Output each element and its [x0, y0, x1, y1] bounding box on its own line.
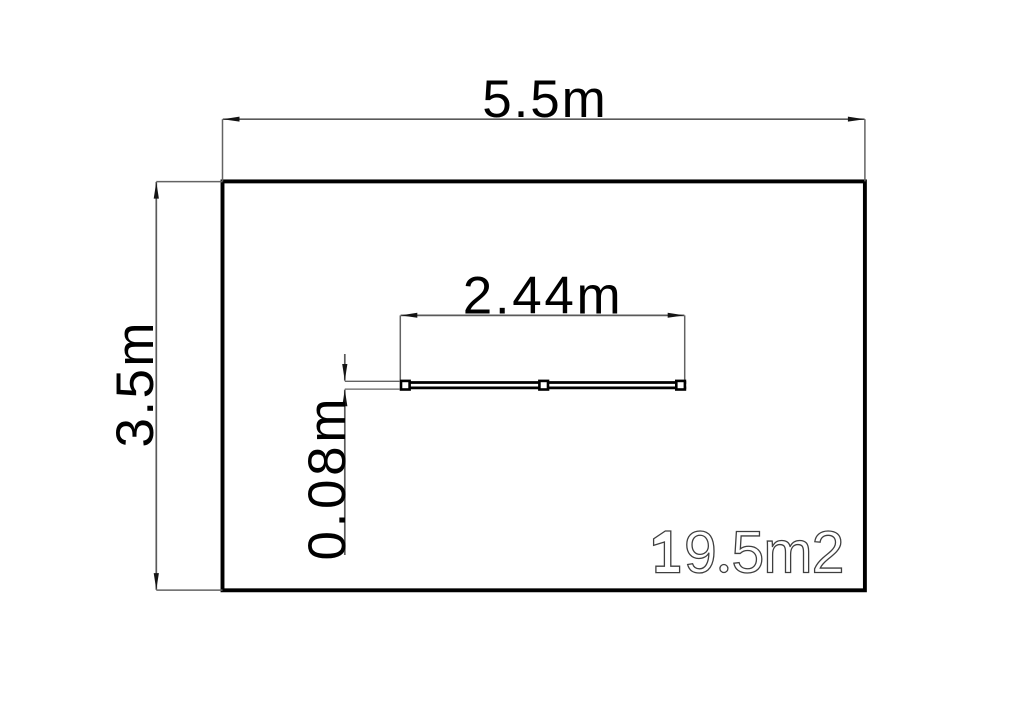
- svg-text:2.44m: 2.44m: [463, 267, 621, 326]
- svg-text:5.5m: 5.5m: [482, 70, 606, 129]
- svg-text:9.5m2: 9.5m2: [684, 520, 845, 586]
- svg-text:0.08m: 0.08m: [298, 399, 357, 561]
- svg-text:3.5m: 3.5m: [106, 323, 165, 448]
